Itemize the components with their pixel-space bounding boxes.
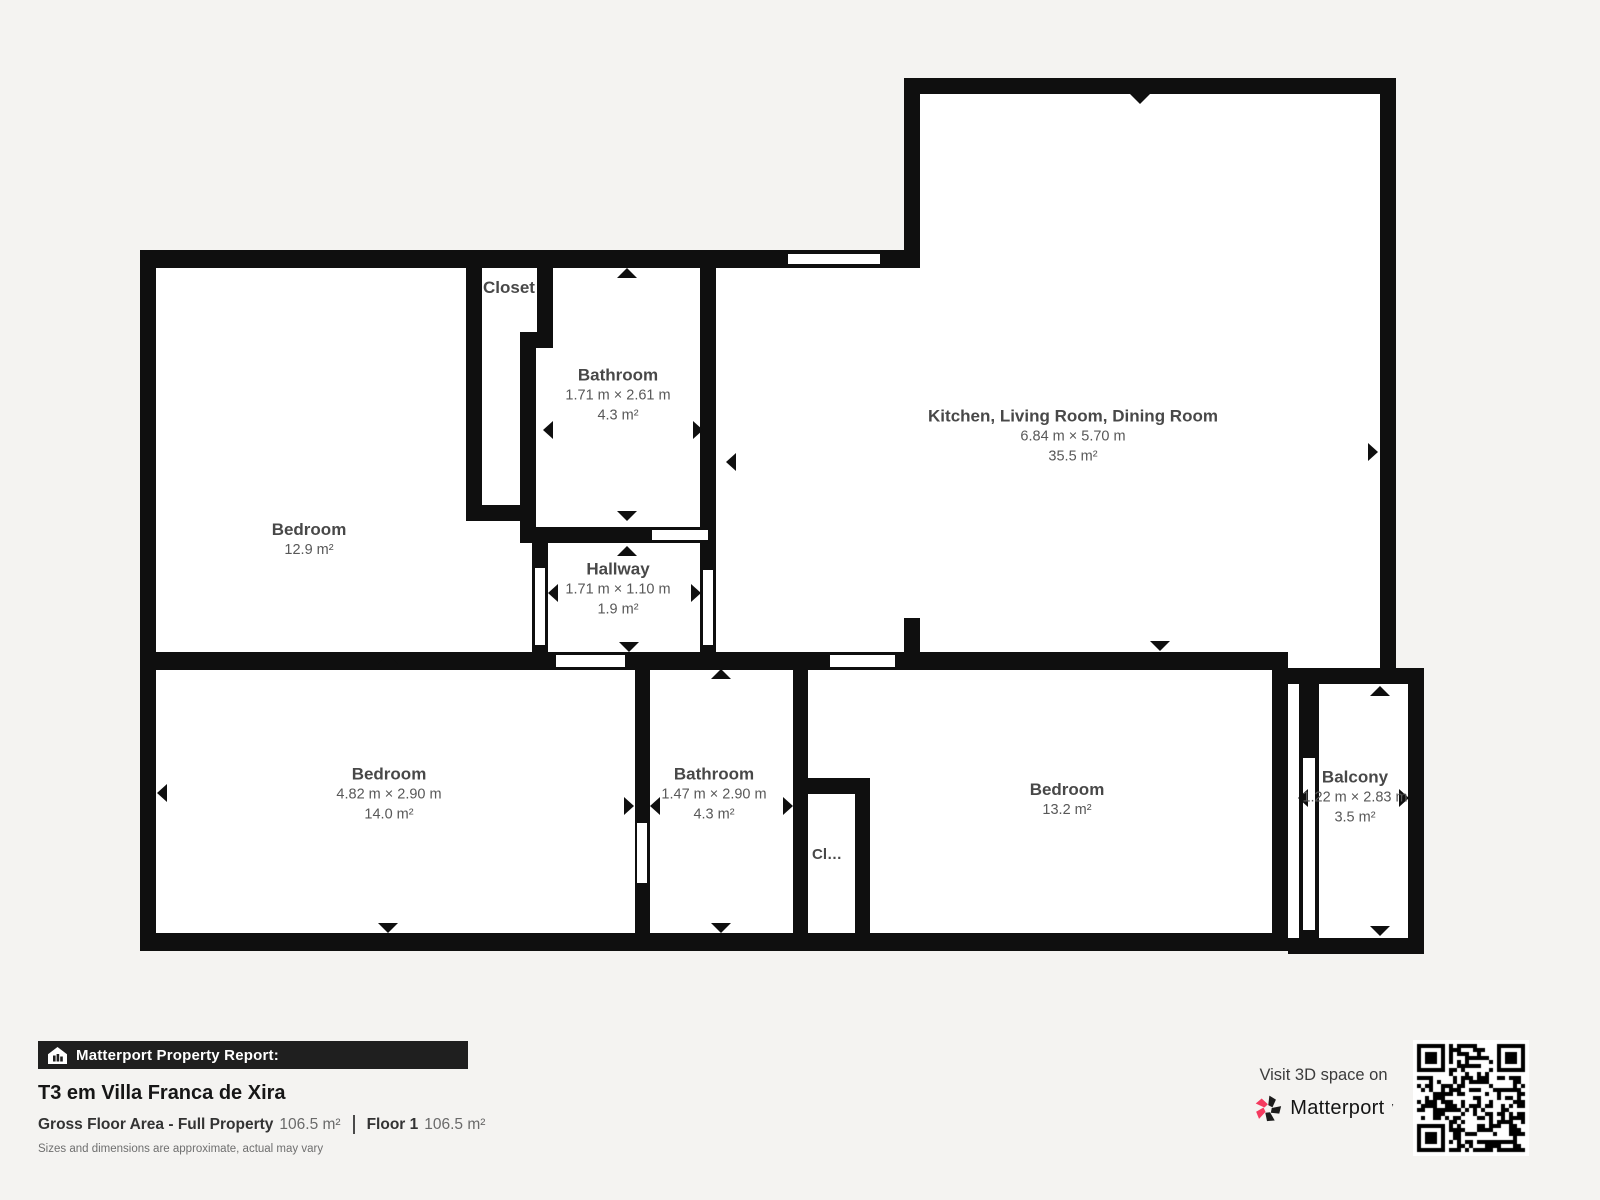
room-area: 14.0 m² [336,805,441,824]
room-label-bathroom-top: Bathroom 1.71 m × 2.61 m 4.3 m² [565,365,670,426]
room-label-bedroom-bottom-left: Bedroom 4.82 m × 2.90 m 14.0 m² [336,764,441,825]
room-label-balcony: Balcony 1.22 m × 2.83 m 3.5 m² [1302,767,1407,828]
room-label-bathroom-bottom: Bathroom 1.47 m × 2.90 m 4.3 m² [661,764,766,825]
room-dimensions: 4.82 m × 2.90 m [336,786,441,805]
room-label-bedroom-bottom-right: Bedroom 13.2 m² [1030,779,1105,821]
floorplan-footprint [140,78,1424,954]
room-name: Bedroom [1030,779,1105,801]
room-area: 13.2 m² [1030,802,1105,821]
separator [353,1115,355,1134]
matterport-brand-row: Matterport ’ [1236,1093,1411,1123]
room-name: Hallway [565,559,670,581]
room-label-bedroom-top-left: Bedroom 12.9 m² [272,519,347,561]
area-summary: Gross Floor Area - Full Property 106.5 m… [38,1115,738,1134]
room-name: Bathroom [565,365,670,387]
gross-floor-area-value: 106.5 m² [279,1116,340,1134]
room-area: 4.3 m² [565,406,670,425]
property-title: T3 em Villa Franca de Xira [38,1082,738,1105]
room-name: Bedroom [336,764,441,786]
room-dimensions: 1.71 m × 2.61 m [565,387,670,406]
room-name: Bathroom [661,764,766,786]
house-report-icon [48,1047,67,1064]
floorplan-drawing [0,0,1600,1200]
room-label-kitchen-living-dining: Kitchen, Living Room, Dining Room 6.84 m… [928,406,1218,467]
report-header-bar: Matterport Property Report: [38,1041,468,1069]
room-area: 3.5 m² [1302,808,1407,827]
room-area: 12.9 m² [272,542,347,561]
room-label-closet-bottom: Cl… [812,845,842,865]
floor-plan: Bedroom 12.9 m² Closet Bathroom 1.71 m ×… [0,0,1600,1200]
room-label-closet-top: Closet [483,277,535,299]
room-label-hallway: Hallway 1.71 m × 1.10 m 1.9 m² [565,559,670,620]
floor-label: Floor 1 [367,1116,419,1134]
room-name: Kitchen, Living Room, Dining Room [928,406,1218,428]
room-name: Bedroom [272,519,347,541]
qr-code[interactable] [1413,1040,1529,1156]
floor-value: 106.5 m² [424,1116,485,1134]
room-dimensions: 1.22 m × 2.83 m [1302,789,1407,808]
matterport-promo[interactable]: Visit 3D space on Matterport ’ [1236,1066,1411,1123]
room-area: 1.9 m² [565,600,670,619]
matterport-pinwheel-icon [1253,1093,1283,1123]
report-footer: Matterport Property Report: T3 em Villa … [38,1041,738,1155]
room-area: 35.5 m² [928,447,1218,466]
room-name: Balcony [1302,767,1407,789]
trademark-tick: ’ [1391,1103,1393,1114]
room-dimensions: 6.84 m × 5.70 m [928,428,1218,447]
gross-floor-area-label: Gross Floor Area - Full Property [38,1116,273,1134]
room-name: Closet [483,277,535,299]
matterport-wordmark: Matterport [1290,1097,1384,1120]
room-dimensions: 1.71 m × 1.10 m [565,581,670,600]
room-area: 4.3 m² [661,805,766,824]
visit-3d-text: Visit 3D space on [1236,1066,1411,1085]
floorplan-page: Bedroom 12.9 m² Closet Bathroom 1.71 m ×… [0,0,1600,1200]
disclaimer-text: Sizes and dimensions are approximate, ac… [38,1143,738,1155]
report-bar-label: Matterport Property Report: [76,1047,279,1064]
room-dimensions: 1.47 m × 2.90 m [661,786,766,805]
room-name: Cl… [812,845,842,865]
